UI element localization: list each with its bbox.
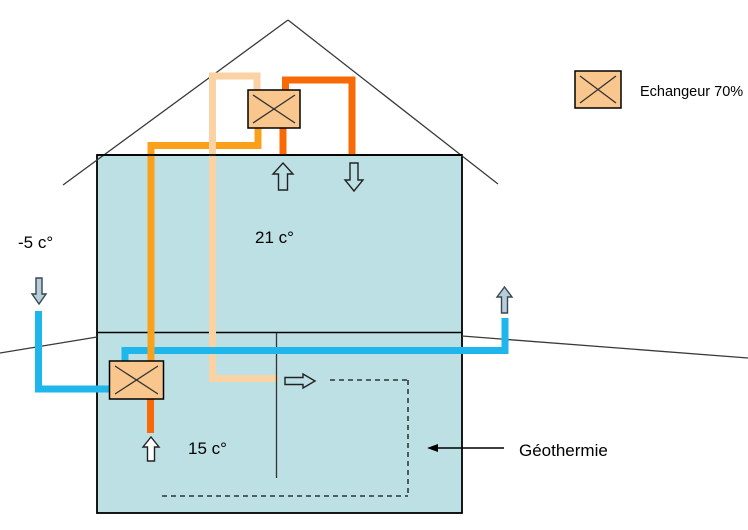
geothermal-heating-diagram: Echangeur 70% -5 c° 21 c° 15 c° Géotherm… xyxy=(0,0,748,530)
lower-exchanger xyxy=(110,361,164,399)
legend: Echangeur 70% xyxy=(575,71,743,108)
geothermie-label: Géothermie xyxy=(519,441,608,460)
diagram-svg: Echangeur 70% -5 c° 21 c° 15 c° Géotherm… xyxy=(0,0,748,530)
basement-temp-label: 15 c° xyxy=(188,439,227,458)
legend-label: Echangeur 70% xyxy=(640,84,743,100)
outside-temp-label: -5 c° xyxy=(18,233,53,252)
room-temp-label: 21 c° xyxy=(255,228,294,247)
upper-exchanger xyxy=(248,90,300,128)
outside-intake-down-arrow-icon xyxy=(32,278,46,304)
outside-exhaust-up-arrow-icon xyxy=(497,287,512,313)
ground-line-left xyxy=(0,337,97,353)
